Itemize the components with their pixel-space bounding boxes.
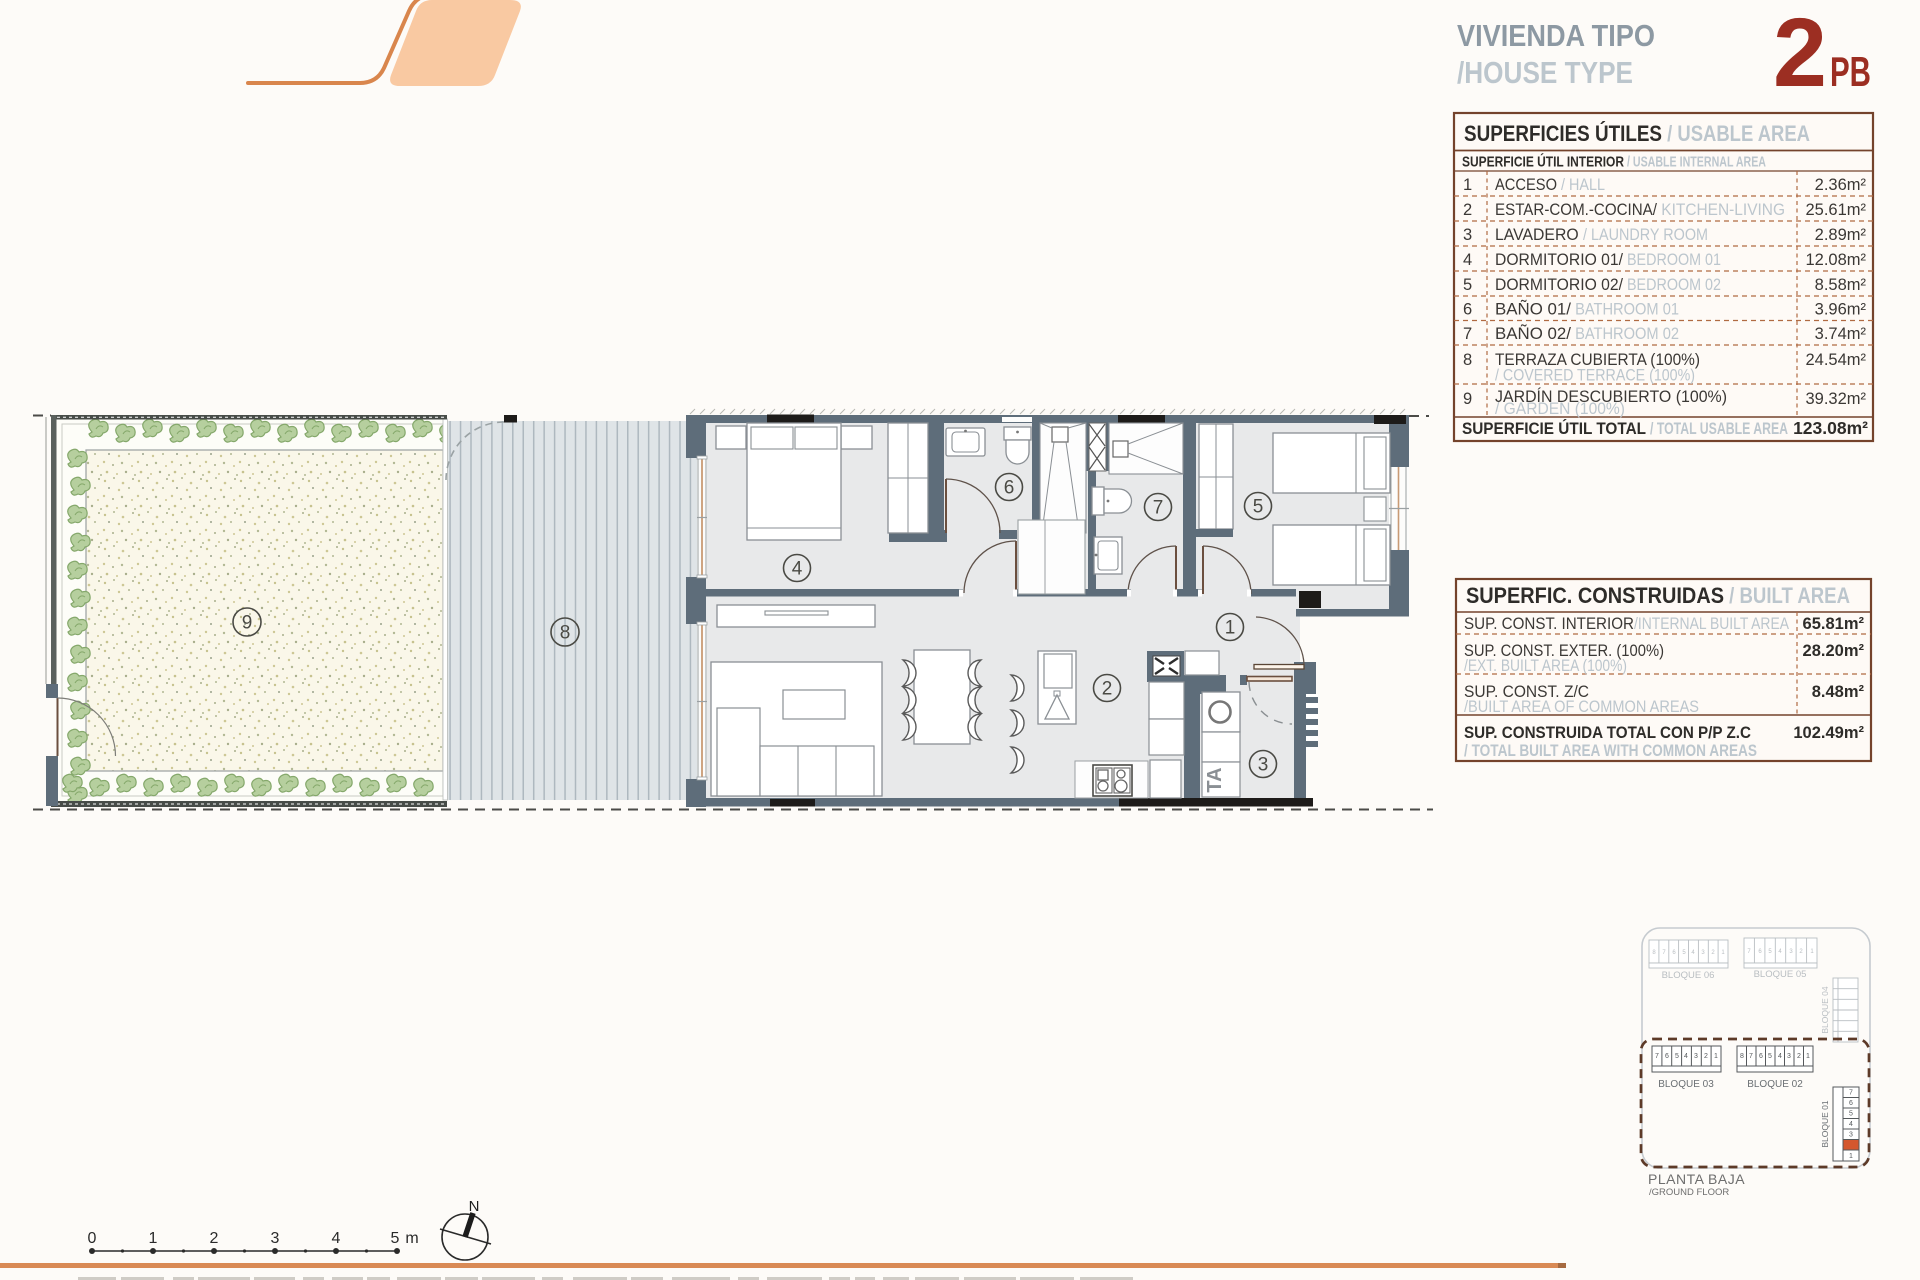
svg-text:1: 1: [1463, 176, 1472, 194]
svg-text:8: 8: [1463, 351, 1472, 369]
svg-text:BLOQUE 06: BLOQUE 06: [1662, 970, 1715, 981]
svg-text:8: 8: [560, 623, 571, 644]
svg-text:7: 7: [1849, 1090, 1853, 1097]
svg-text:SUPERFIC. CONSTRUIDAS / BUILT: SUPERFIC. CONSTRUIDAS / BUILT AREA: [1466, 583, 1850, 608]
svg-text:65.81m²: 65.81m²: [1803, 615, 1865, 633]
svg-text:BAÑO 02/ BATHROOM 02: BAÑO 02/ BATHROOM 02: [1495, 323, 1679, 343]
svg-text:VIVIENDA TIPO: VIVIENDA TIPO: [1457, 18, 1655, 53]
svg-text:2: 2: [1773, 0, 1827, 107]
svg-text:SUPERFICIE ÚTIL TOTAL / TOTAL: SUPERFICIE ÚTIL TOTAL / TOTAL USABLE ARE…: [1462, 419, 1788, 438]
svg-text:/HOUSE TYPE: /HOUSE TYPE: [1457, 55, 1633, 90]
svg-text:0: 0: [88, 1230, 97, 1247]
svg-text:3: 3: [1787, 1053, 1791, 1060]
svg-text:4: 4: [1684, 1053, 1688, 1060]
svg-text:/EXT. BUILT AREA (100%): /EXT. BUILT AREA (100%): [1464, 657, 1627, 675]
svg-text:3: 3: [1694, 1053, 1698, 1060]
svg-text:2: 2: [1463, 201, 1472, 219]
svg-text:SUP. CONST. INTERIOR/INTERNAL: SUP. CONST. INTERIOR/INTERNAL BUILT AREA: [1464, 615, 1789, 633]
svg-text:5: 5: [1768, 1053, 1772, 1060]
svg-text:SUP. CONSTRUIDA TOTAL CON P/P: SUP. CONSTRUIDA TOTAL CON P/P Z.C: [1464, 724, 1751, 742]
svg-text:6: 6: [1759, 1053, 1763, 1060]
svg-text:BLOQUE 01: BLOQUE 01: [1820, 1100, 1830, 1148]
svg-text:8.58m²: 8.58m²: [1815, 276, 1867, 294]
svg-text:DORMITORIO 02/ BEDROOM 02: DORMITORIO 02/ BEDROOM 02: [1495, 276, 1721, 294]
svg-text:3: 3: [1849, 1132, 1853, 1139]
svg-text:7: 7: [1655, 1053, 1659, 1060]
svg-text:/ COVERED TERRACE (100%): / COVERED TERRACE (100%): [1495, 367, 1695, 385]
svg-text:2: 2: [1102, 679, 1113, 700]
svg-text:4: 4: [792, 559, 803, 580]
svg-text:ESTAR-COM.-COCINA/ KITCHEN-LIV: ESTAR-COM.-COCINA/ KITCHEN-LIVING: [1495, 201, 1785, 219]
svg-text:6: 6: [1463, 301, 1472, 319]
svg-text:5: 5: [1675, 1053, 1679, 1060]
svg-text:/ TOTAL BUILT AREA WITH COMMON: / TOTAL BUILT AREA WITH COMMON AREAS: [1464, 742, 1757, 760]
svg-text:BLOQUE 02: BLOQUE 02: [1747, 1079, 1803, 1090]
svg-text:4: 4: [332, 1230, 341, 1247]
svg-text:PLANTA BAJA: PLANTA BAJA: [1648, 1171, 1745, 1187]
svg-text:8: 8: [1740, 1053, 1744, 1060]
svg-text:12.08m²: 12.08m²: [1805, 251, 1866, 269]
svg-text:DORMITORIO 01/ BEDROOM 01: DORMITORIO 01/ BEDROOM 01: [1495, 251, 1721, 269]
svg-text:3: 3: [1258, 755, 1269, 776]
svg-text:2: 2: [210, 1230, 219, 1247]
svg-text:3: 3: [271, 1230, 280, 1247]
svg-text:6: 6: [1849, 1100, 1853, 1107]
svg-text:N: N: [469, 1198, 480, 1215]
svg-text:1: 1: [149, 1230, 158, 1247]
svg-text:m: m: [405, 1230, 418, 1247]
svg-text:/ GARDEN (100%): / GARDEN (100%): [1495, 400, 1625, 418]
svg-text:PB: PB: [1830, 48, 1871, 95]
svg-text:BLOQUE 04: BLOQUE 04: [1820, 986, 1830, 1034]
svg-text:5: 5: [391, 1230, 400, 1247]
svg-text:3: 3: [1463, 226, 1472, 244]
svg-text:BAÑO 01/ BATHROOM 01: BAÑO 01/ BATHROOM 01: [1495, 299, 1679, 319]
svg-text:BLOQUE 03: BLOQUE 03: [1658, 1079, 1714, 1090]
svg-text:6: 6: [1004, 478, 1015, 499]
svg-text:39.32m²: 39.32m²: [1805, 390, 1866, 408]
svg-text:4: 4: [1778, 1053, 1782, 1060]
svg-text:8.48m²: 8.48m²: [1812, 683, 1865, 701]
svg-text:9: 9: [242, 613, 253, 634]
svg-text:24.54m²: 24.54m²: [1805, 351, 1866, 369]
svg-text:LAVADERO / LAUNDRY ROOM: LAVADERO / LAUNDRY ROOM: [1495, 226, 1708, 244]
svg-text:1: 1: [1849, 1153, 1853, 1160]
svg-text:4: 4: [1463, 251, 1472, 269]
svg-text:6: 6: [1665, 1053, 1669, 1060]
svg-text:SUPERFICIES ÚTILES / USABLE AR: SUPERFICIES ÚTILES / USABLE AREA: [1464, 121, 1810, 146]
svg-text:/GROUND FLOOR: /GROUND FLOOR: [1649, 1187, 1729, 1198]
svg-text:28.20m²: 28.20m²: [1803, 642, 1865, 660]
svg-text:4: 4: [1849, 1121, 1853, 1128]
svg-text:25.61m²: 25.61m²: [1805, 201, 1866, 219]
svg-text:2: 2: [1704, 1053, 1708, 1060]
svg-text:1: 1: [1806, 1053, 1810, 1060]
svg-text:SUPERFICIE ÚTIL INTERIOR / USA: SUPERFICIE ÚTIL INTERIOR / USABLE INTERN…: [1462, 153, 1766, 171]
svg-text:7: 7: [1749, 1053, 1753, 1060]
svg-text:2.89m²: 2.89m²: [1815, 226, 1867, 244]
svg-text:BLOQUE 05: BLOQUE 05: [1754, 969, 1807, 980]
svg-text:5: 5: [1849, 1111, 1853, 1118]
svg-text:5: 5: [1463, 276, 1472, 294]
svg-text:123.08m²: 123.08m²: [1793, 418, 1868, 438]
svg-text:3.96m²: 3.96m²: [1815, 301, 1867, 319]
svg-text:5: 5: [1253, 497, 1264, 518]
svg-text:1: 1: [1714, 1053, 1718, 1060]
svg-text:7: 7: [1153, 498, 1164, 519]
svg-text:7: 7: [1463, 325, 1472, 343]
svg-text:/BUILT AREA OF COMMON AREAS: /BUILT AREA OF COMMON AREAS: [1464, 698, 1699, 716]
svg-text:3.74m²: 3.74m²: [1815, 325, 1867, 343]
svg-text:ACCESO / HALL: ACCESO / HALL: [1495, 176, 1605, 194]
svg-text:1: 1: [1225, 618, 1236, 639]
svg-text:2: 2: [1797, 1053, 1801, 1060]
svg-text:2.36m²: 2.36m²: [1815, 176, 1867, 194]
svg-text:102.49m²: 102.49m²: [1793, 724, 1864, 742]
svg-text:9: 9: [1463, 390, 1472, 408]
svg-text:TA: TA: [1204, 767, 1226, 792]
